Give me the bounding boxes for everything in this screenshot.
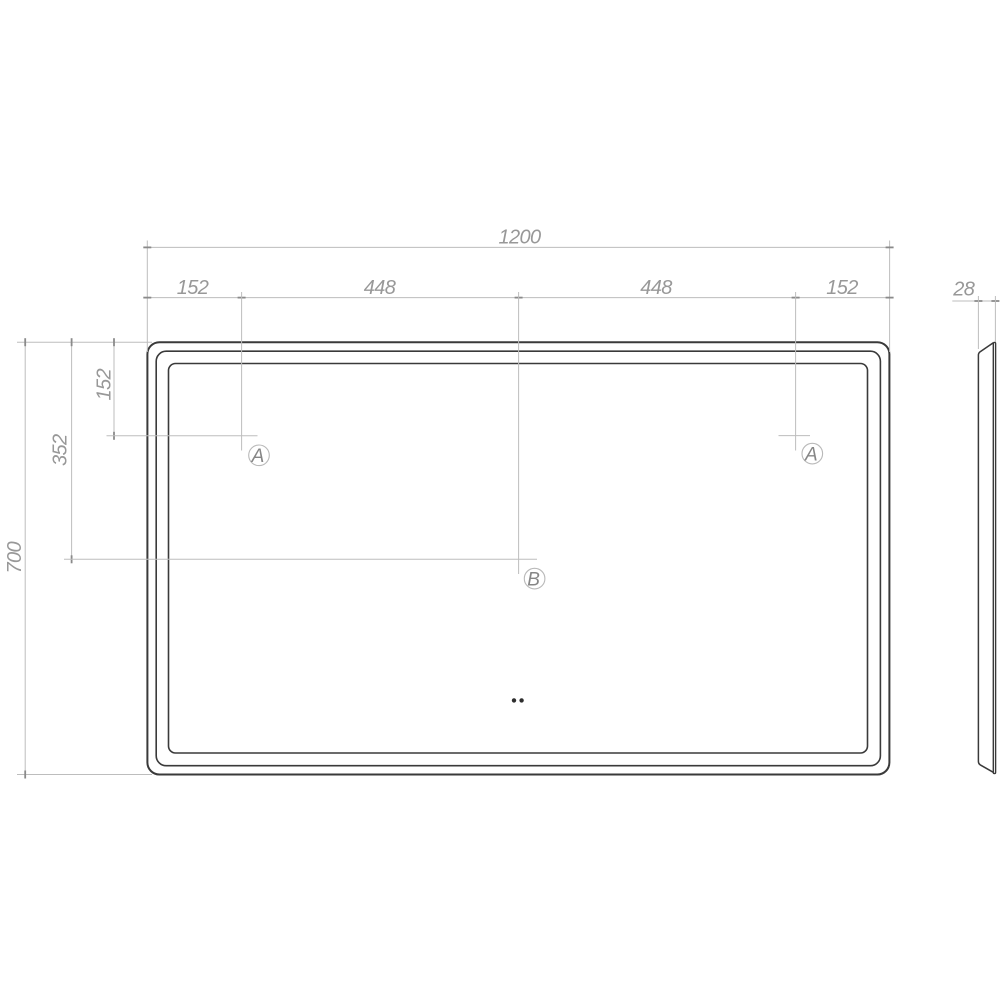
svg-text:A: A [251,446,265,467]
svg-text:448: 448 [640,277,672,299]
svg-text:700: 700 [4,541,26,573]
svg-text:1200: 1200 [498,227,541,249]
svg-text:152: 152 [93,368,115,400]
svg-text:152: 152 [177,277,209,299]
svg-text:448: 448 [364,277,396,299]
svg-text:152: 152 [826,277,858,299]
svg-text:B: B [527,569,540,590]
svg-text:28: 28 [952,279,975,301]
svg-text:A: A [804,444,818,465]
svg-text:352: 352 [50,434,72,466]
